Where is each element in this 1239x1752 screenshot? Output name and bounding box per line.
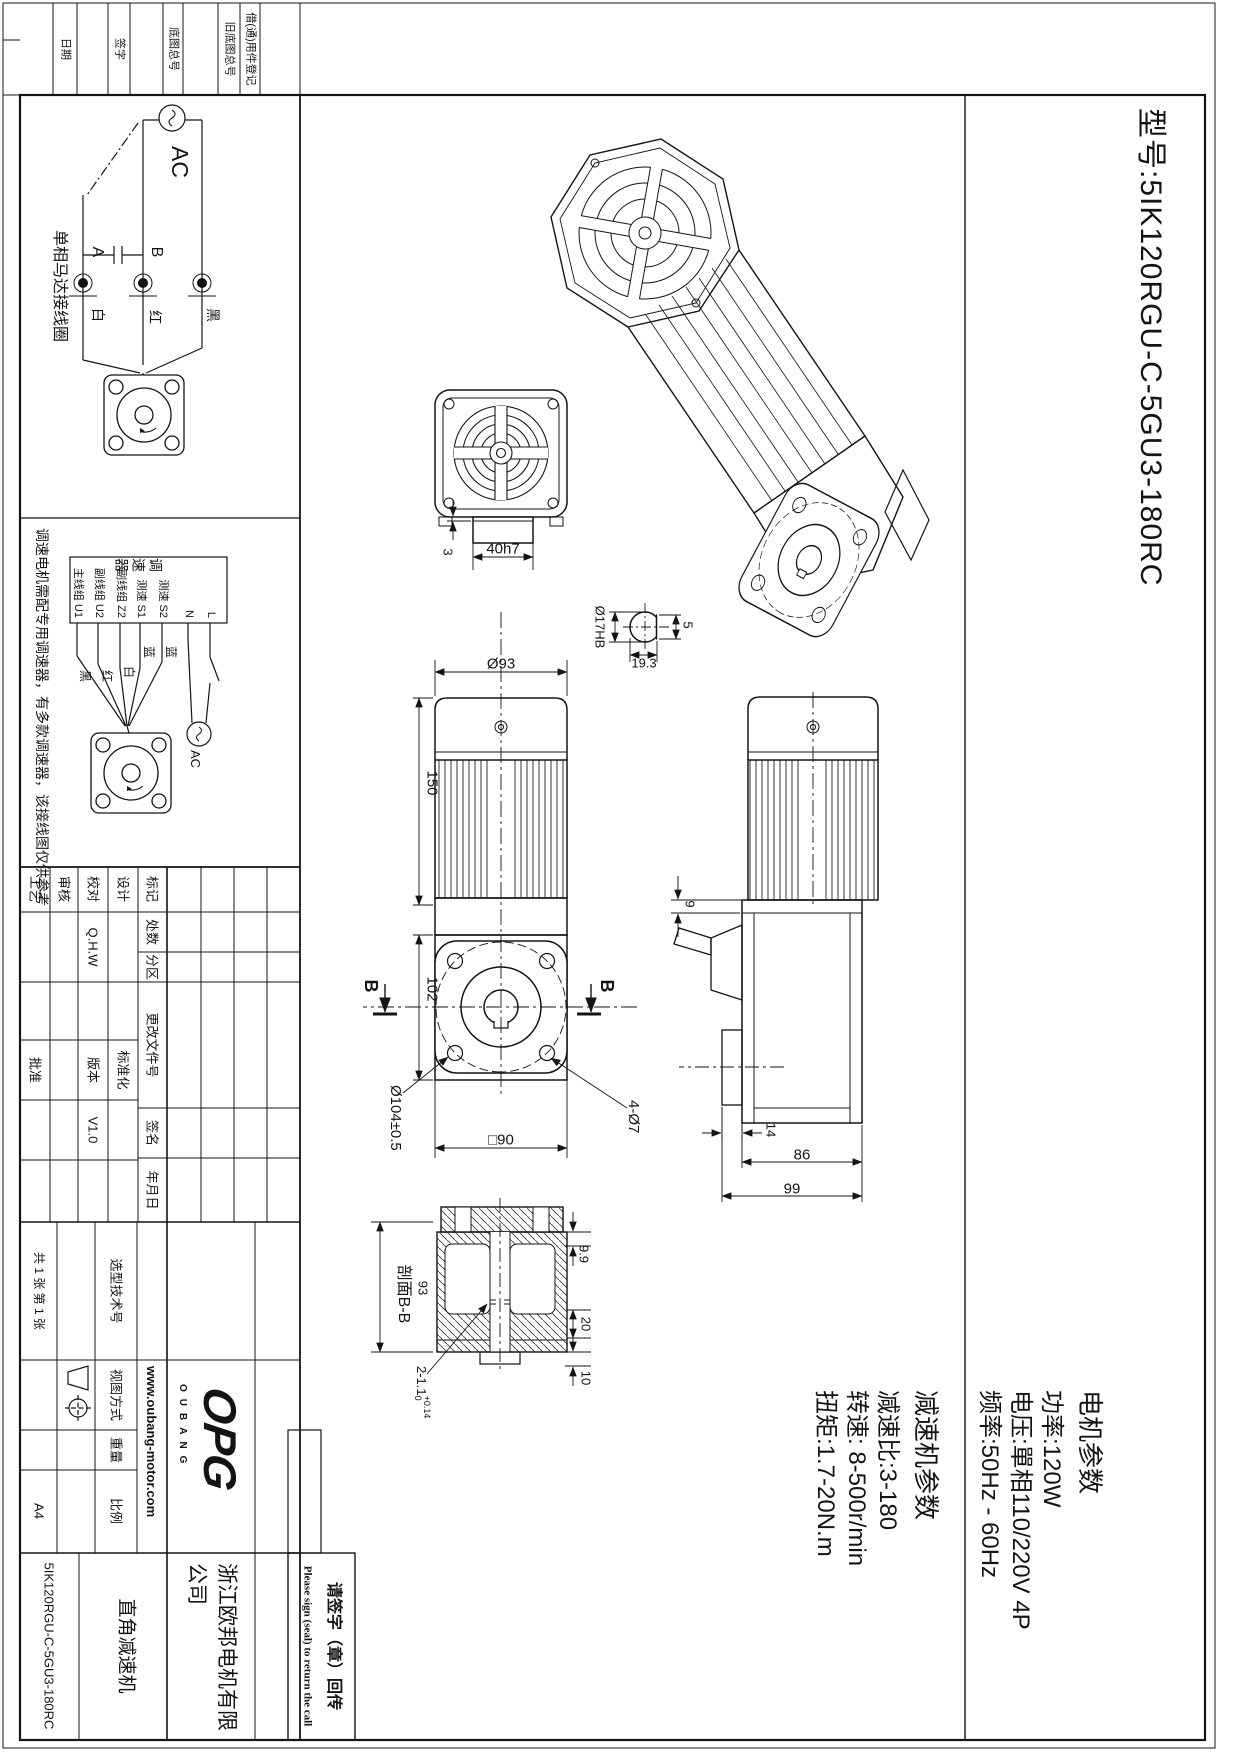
motor-voltage: 电压:單相110/220V 4P [1008, 1390, 1032, 1630]
tb-rev-sign: 签名 [146, 1120, 159, 1146]
tb-design: 设计 [117, 876, 130, 902]
dim-3: 3 [442, 548, 455, 555]
dim-102: 102 [425, 976, 440, 1001]
tb-company-line1: 浙江欧邦电机有限 [216, 1563, 237, 1731]
sign-return-en: Please sign (seal) to return the call [302, 1566, 313, 1727]
tb-rev-zone: 分区 [146, 954, 159, 980]
tb-selection-no: 选型技术号 [110, 1258, 123, 1323]
top-view [674, 692, 878, 1123]
tb-website: www.oubang-motor.com [145, 1366, 158, 1517]
model-title: 型号:5IK120RGU-C-5GU3-180RC [1135, 108, 1165, 586]
tb-sheets: 共 1 张 第 1 张 [33, 1252, 45, 1330]
dim-9: 9 [684, 900, 697, 907]
dim-99: 99 [784, 1182, 801, 1197]
groove-tol-upper: +0.14 [422, 1396, 431, 1419]
reducer-torque: 扭矩:1.7-20N.m [813, 1390, 837, 1557]
tb-standardization: 标准化 [117, 1050, 130, 1089]
wiring2-term-u1: 主线组 U1 [72, 560, 83, 618]
dim-93-dia: Ø93 [487, 657, 515, 672]
tb-audit: 审核 [58, 876, 71, 902]
tb-check: 校对 [87, 876, 100, 902]
edge-label-old-master: 旧底图总号 [224, 22, 235, 77]
groove-tol-lower: 0 [413, 1396, 422, 1419]
wiring2-term-u2: 副线组 U2 [93, 560, 104, 618]
edge-label-date: 日期 [60, 38, 71, 60]
dim-5: 5 [682, 621, 695, 628]
tb-company-line2: 公司 [186, 1563, 207, 1605]
dim-9-9: 9.9 [578, 1245, 591, 1263]
motor-frequency: 频率:50Hz - 60Hz [977, 1390, 1001, 1578]
tb-product-name: 直角减速机 [117, 1598, 136, 1693]
section-title: 剖面B-B [395, 1265, 411, 1324]
wiring2-ac-label: AC [189, 750, 202, 768]
reducer-ratio: 减速比:3-180 [875, 1390, 899, 1530]
isometric-view [551, 139, 929, 642]
dim-14: 14 [765, 1123, 778, 1137]
wiring2-term-s1: 测速 S1 [135, 560, 146, 618]
edge-label-borrow: 借(通)用件登记 [245, 12, 256, 85]
drawing-sheet: 型号:5IK120RGU-C-5GU3-180RC 电机参数 功率:120W 电… [0, 0, 1239, 1752]
tb-scale: 比例 [110, 1498, 123, 1524]
dim-19-3: 19.3 [631, 657, 656, 670]
wiring2-term-n: N [183, 560, 194, 618]
tb-paper-size: A4 [33, 1503, 46, 1519]
wiring1-terminal-b: B [148, 247, 164, 258]
dim-10: 10 [580, 1371, 593, 1385]
reducer-speed: 转速: 8-500r/min [844, 1390, 868, 1566]
wiring-single-phase [69, 105, 216, 455]
wiring1-terminal-a: A [89, 247, 105, 258]
tb-rev-mark: 标记 [146, 876, 159, 902]
tb-approve: 批准 [29, 1057, 42, 1083]
opg-logo: OPG [197, 1385, 243, 1494]
wiring2-color-blue2: 蓝 [143, 646, 155, 658]
rear-view [435, 390, 567, 543]
dim-150: 150 [425, 770, 440, 795]
tb-rev-count: 处数 [146, 919, 159, 945]
motor-params-heading: 电机参数 [1077, 1390, 1103, 1494]
tb-designer-name: Q.H.W [87, 928, 100, 967]
groove-value: 2-1.1 [414, 1366, 429, 1396]
edge-label-master: 底图总号 [168, 27, 179, 71]
wiring2-color-black: 黑 [79, 670, 91, 682]
dim-sec-93: 93 [417, 1281, 430, 1295]
dim-86: 86 [794, 1148, 811, 1163]
sign-return-cn: 请签字（章）回传 [325, 1582, 341, 1710]
tb-drawing-number: 5IK120RGU-C-5GU3-180RC [43, 1563, 56, 1730]
wiring2-color-white: 白 [123, 666, 135, 678]
tb-weight: 重量 [110, 1437, 123, 1463]
tb-version-label: 版本 [87, 1057, 100, 1083]
wiring1-wire-black: 黑 [206, 308, 220, 322]
wiring2-term-s2: 测速 S2 [157, 560, 168, 618]
wiring2-color-blue1: 蓝 [165, 646, 177, 658]
dim-17hb: Ø17HB [594, 606, 607, 649]
opg-logo-subtext: OUBANG [177, 1384, 187, 1470]
drawing-page: 型号:5IK120RGU-C-5GU3-180RC 电机参数 功率:120W 电… [0, 0, 1239, 1752]
section-view [437, 1198, 567, 1372]
dim-groove: 2-1.1+0.140 [413, 1366, 431, 1418]
wiring1-wire-red: 红 [148, 310, 162, 324]
motor-power: 功率:120W [1039, 1390, 1063, 1507]
dim-4x7: 4-Ø7 [626, 1100, 641, 1133]
tb-version-value: V1.0 [87, 1117, 100, 1144]
tb-rev-date: 年月日 [146, 1170, 159, 1209]
section-label-b-bottom: B [362, 980, 380, 993]
section-label-b-top: B [598, 980, 616, 993]
wiring2-term-l: L [205, 560, 216, 618]
dim-sq90: □90 [488, 1133, 514, 1148]
dim-20: 20 [580, 1317, 593, 1331]
wiring2-color-red: 红 [101, 670, 113, 682]
dim-40h7: 40h7 [486, 542, 519, 557]
tb-process: 工艺 [29, 876, 42, 902]
groove-tolerance: +0.140 [413, 1396, 431, 1419]
reducer-params-heading: 减速机参数 [913, 1390, 939, 1520]
tb-view-method: 视图方式 [110, 1369, 123, 1421]
dim-104: Ø104±0.5 [388, 1085, 403, 1151]
wiring2-term-z2: 副线组 Z2 [115, 560, 126, 618]
edge-label-signature: 签字 [114, 38, 125, 60]
fins-iso [646, 259, 852, 501]
wiring1-caption: 单相马达接线圈 [51, 230, 67, 342]
wiring2-caption: 调速电机需配专用调速器，有多款调速器，该接线图仅供参考 [35, 528, 49, 906]
wiring1-ac-label: AC [168, 146, 191, 178]
fins-top [750, 760, 874, 900]
wiring1-wire-white: 白 [91, 308, 105, 322]
front-view [363, 612, 637, 1098]
tb-rev-doc: 更改文件号 [146, 1012, 159, 1077]
shaft-detail [621, 603, 669, 651]
